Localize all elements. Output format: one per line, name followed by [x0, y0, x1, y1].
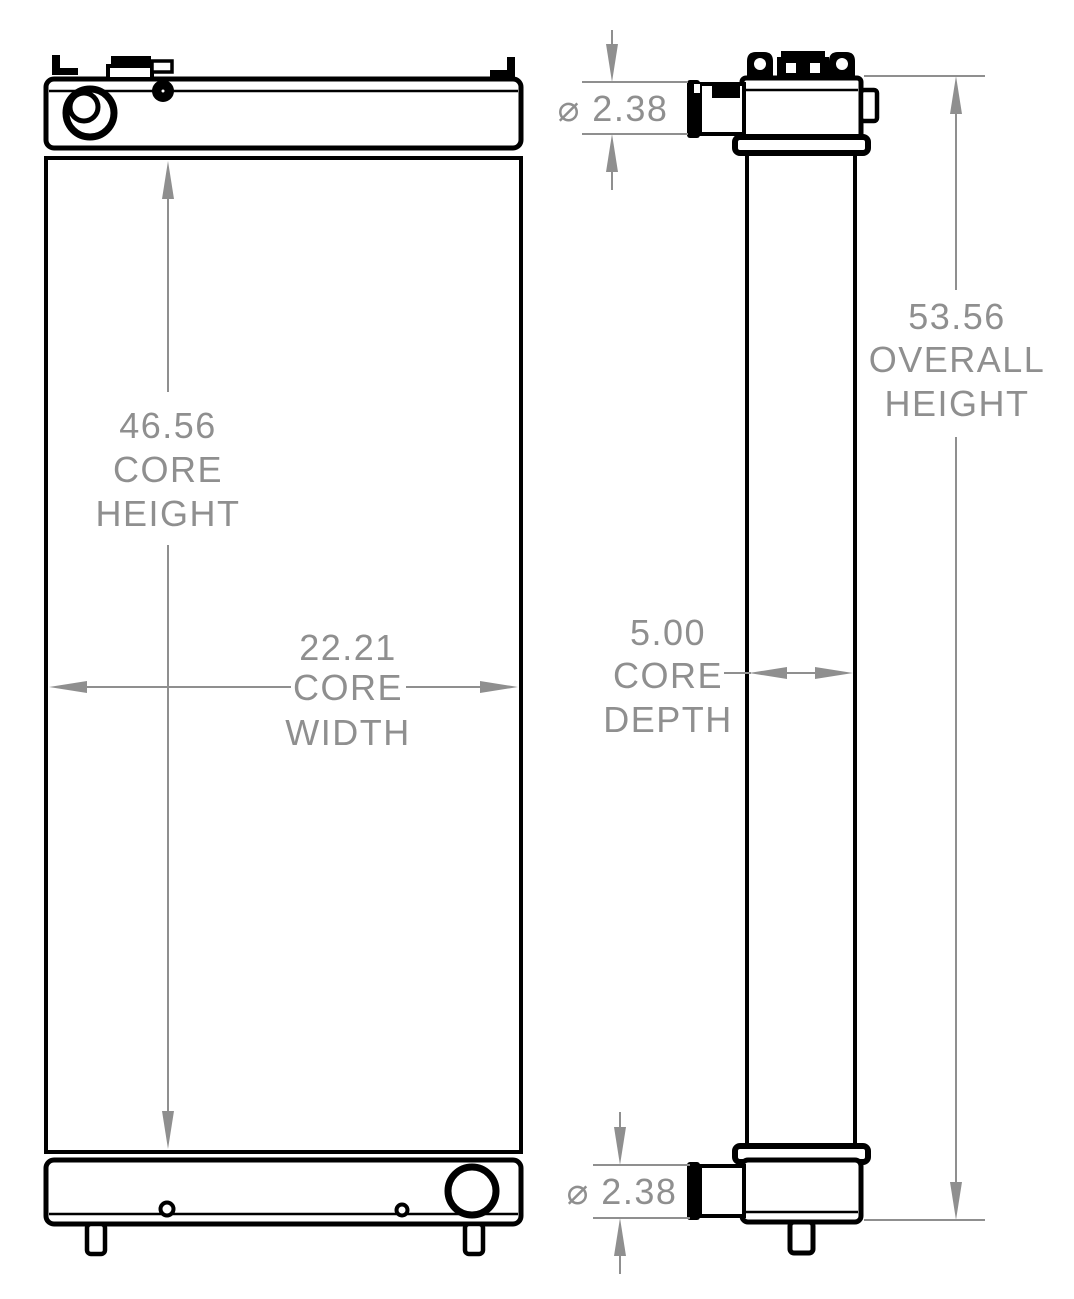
core-width-label-2: WIDTH	[285, 712, 410, 753]
lifting-eye-right-hole	[836, 58, 848, 70]
outlet-pipe	[700, 1166, 744, 1216]
side-cap-cutout-left	[786, 63, 796, 73]
front-bottom-tank	[46, 1160, 521, 1254]
front-left-foot	[87, 1224, 105, 1254]
core-width-label-1: CORE	[293, 667, 403, 708]
dim-overall-height: 53.56 OVERALL HEIGHT	[864, 76, 1045, 1220]
filler-cap-nub	[152, 61, 172, 72]
arrow-down-icon	[950, 1182, 962, 1220]
outlet-diameter-value: ⌀ 2.38	[567, 1171, 678, 1212]
dim-core-depth: 5.00 CORE DEPTH	[603, 612, 853, 740]
arrow-down-icon	[606, 44, 618, 82]
side-cap-cutout-right	[810, 63, 820, 73]
left-mounting-bracket-icon	[52, 55, 78, 75]
side-top-tank	[687, 51, 877, 153]
side-top-tank-body	[742, 78, 861, 140]
core-height-label-1: CORE	[113, 449, 223, 490]
core-width-value: 22.21	[299, 627, 397, 668]
inlet-diameter-value: ⌀ 2.38	[558, 88, 669, 129]
outlet-pipe-flange	[687, 1162, 700, 1220]
filler-neck	[108, 66, 152, 79]
drain-plug-left-icon	[161, 1203, 174, 1216]
lifting-eye-left-hole	[754, 58, 766, 70]
side-view	[687, 51, 877, 1253]
core-depth-label-2: DEPTH	[603, 699, 733, 740]
front-top-tank	[46, 55, 521, 158]
overall-height-value: 53.56	[908, 296, 1006, 337]
outlet-port-icon	[448, 1167, 496, 1215]
inlet-pipe-flange-notch	[694, 84, 700, 93]
core-height-label-2: HEIGHT	[95, 493, 240, 534]
arrow-right-icon	[815, 667, 853, 679]
side-foot	[790, 1222, 813, 1253]
arrow-up-icon	[950, 76, 962, 114]
right-mounting-bracket-icon	[490, 57, 515, 77]
side-right-fitting	[861, 90, 877, 121]
dim-outlet-diameter: ⌀ 2.38	[567, 1112, 690, 1274]
radiator-dimensional-drawing: 46.56 CORE HEIGHT 22.21 CORE WIDTH ⌀ 2.3…	[0, 0, 1074, 1299]
front-right-foot	[465, 1224, 483, 1254]
inlet-pipe-connector	[712, 86, 740, 98]
arrow-up-icon	[614, 1218, 626, 1256]
top-plug-center	[162, 90, 165, 93]
arrow-down-icon	[614, 1127, 626, 1165]
arrow-up-icon	[606, 134, 618, 172]
core-depth-value: 5.00	[630, 612, 706, 653]
overall-height-label-2: HEIGHT	[884, 383, 1029, 424]
overall-height-label-1: OVERALL	[869, 339, 1046, 380]
arrow-left-icon	[749, 667, 787, 679]
side-top-tank-flange	[735, 137, 868, 153]
front-core	[46, 158, 521, 1152]
core-depth-label-1: CORE	[613, 655, 723, 696]
filler-cap-top	[111, 56, 151, 66]
dim-inlet-diameter: ⌀ 2.38	[558, 30, 688, 190]
drain-plug-right-icon	[397, 1205, 408, 1216]
side-bottom-tank	[687, 1146, 868, 1253]
front-view	[46, 55, 521, 1254]
core-height-value: 46.56	[119, 405, 217, 446]
